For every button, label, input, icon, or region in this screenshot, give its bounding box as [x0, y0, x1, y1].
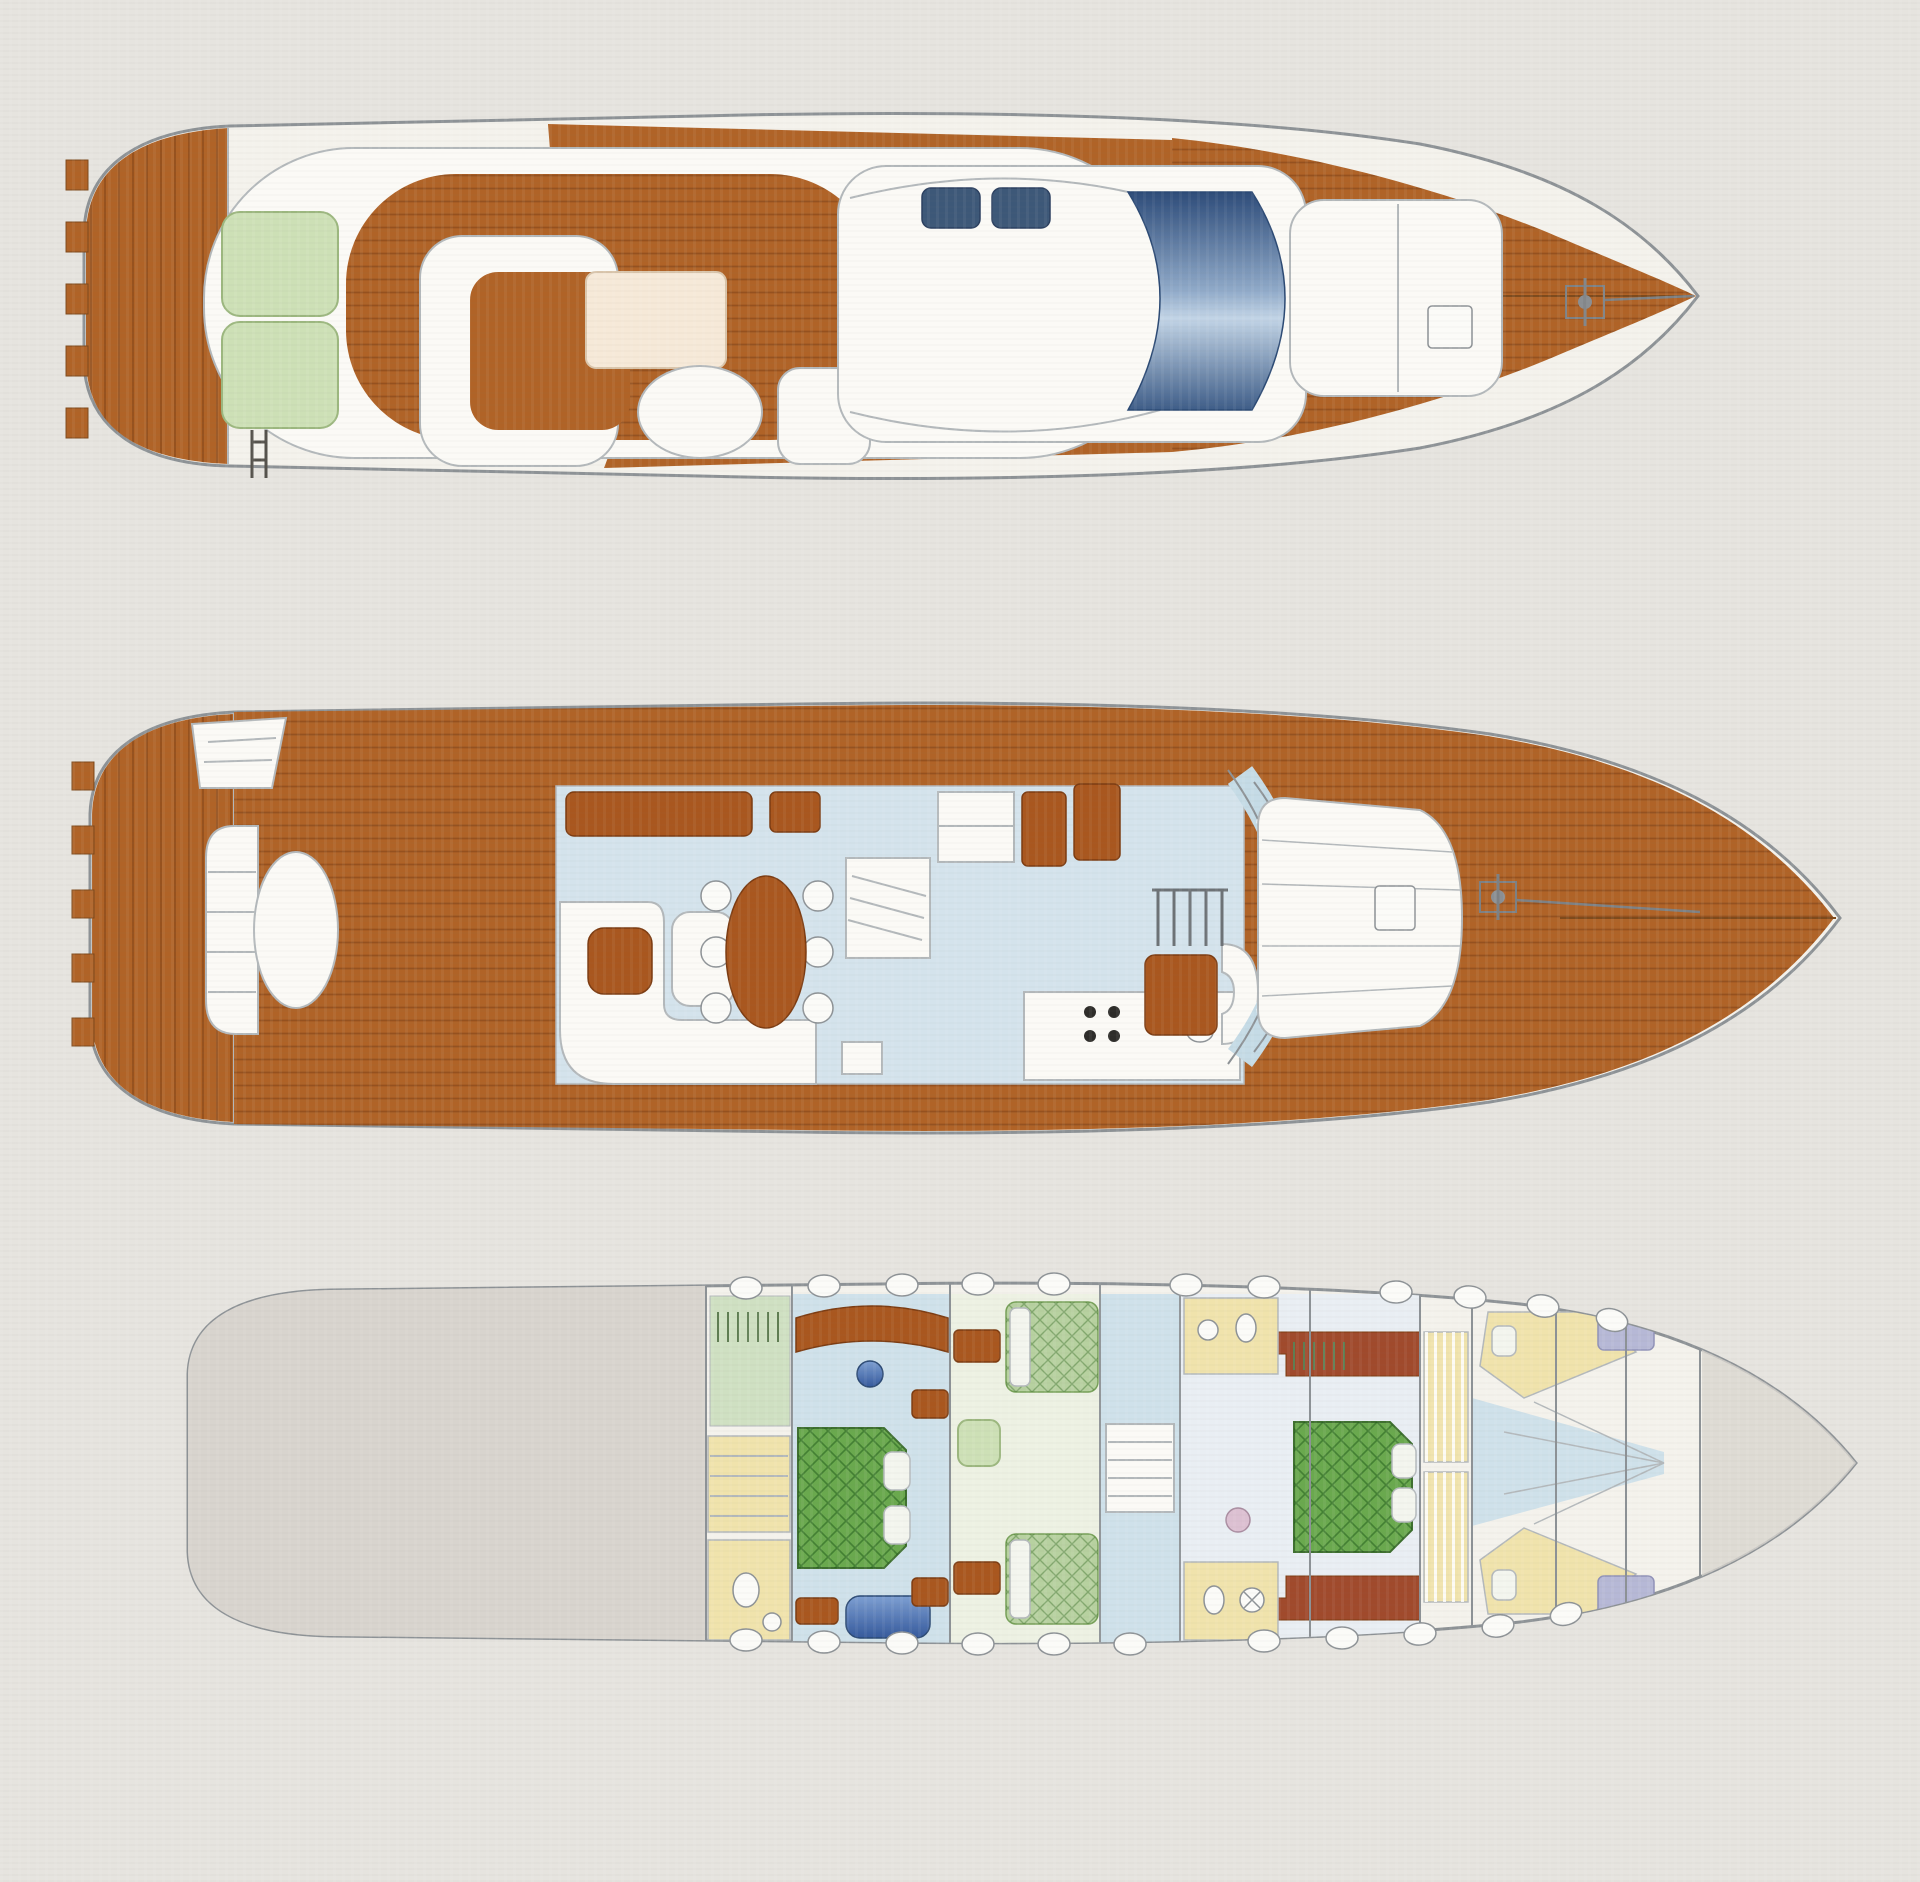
lobby-stairs: [1106, 1424, 1174, 1512]
forepeak: [1702, 1280, 1862, 1648]
deck-hatch: [1375, 886, 1415, 930]
deck-hatch: [1428, 306, 1472, 348]
cabinet: [770, 792, 820, 832]
cabin-top: [1258, 798, 1462, 1038]
dining-table: [726, 876, 806, 1028]
lounge-table: [586, 272, 726, 368]
lower-deck-plan: [186, 1273, 1862, 1655]
armchair: [958, 1420, 1000, 1466]
stairs: [708, 1436, 790, 1532]
yacht-deck-plans: [0, 0, 1920, 1882]
tv: [857, 1361, 883, 1387]
dining-set: [701, 876, 833, 1028]
stern-steps: [66, 160, 88, 438]
vanity-stool: [1226, 1508, 1250, 1532]
flybridge-deck-plan: [66, 113, 1698, 478]
bathroom-fwd: [1184, 1298, 1278, 1374]
sideboard: [566, 792, 752, 836]
cockpit-table: [254, 852, 338, 1008]
helm-cabinet: [1074, 784, 1120, 860]
sun-lounger: [638, 366, 762, 458]
foredeck-sunpad: [1290, 200, 1502, 396]
companionway-cabinet: [1022, 792, 1066, 866]
bathroom-aft: [1184, 1562, 1278, 1640]
pillow: [884, 1452, 910, 1490]
pillow: [884, 1506, 910, 1544]
boarding-steps: [192, 718, 286, 788]
hanger-marks: [718, 1312, 778, 1342]
engine-room: [186, 1280, 706, 1648]
floor-hatch: [842, 1042, 882, 1074]
deck-plans-svg: [0, 0, 1920, 1882]
bathroom: [708, 1540, 790, 1640]
coffee-table: [588, 928, 652, 994]
dinette-table: [1145, 955, 1217, 1035]
crew-area: [708, 1296, 790, 1640]
curved-bench: [206, 826, 258, 1034]
main-deck-plan: [72, 703, 1840, 1133]
stairs-down: [846, 858, 930, 958]
